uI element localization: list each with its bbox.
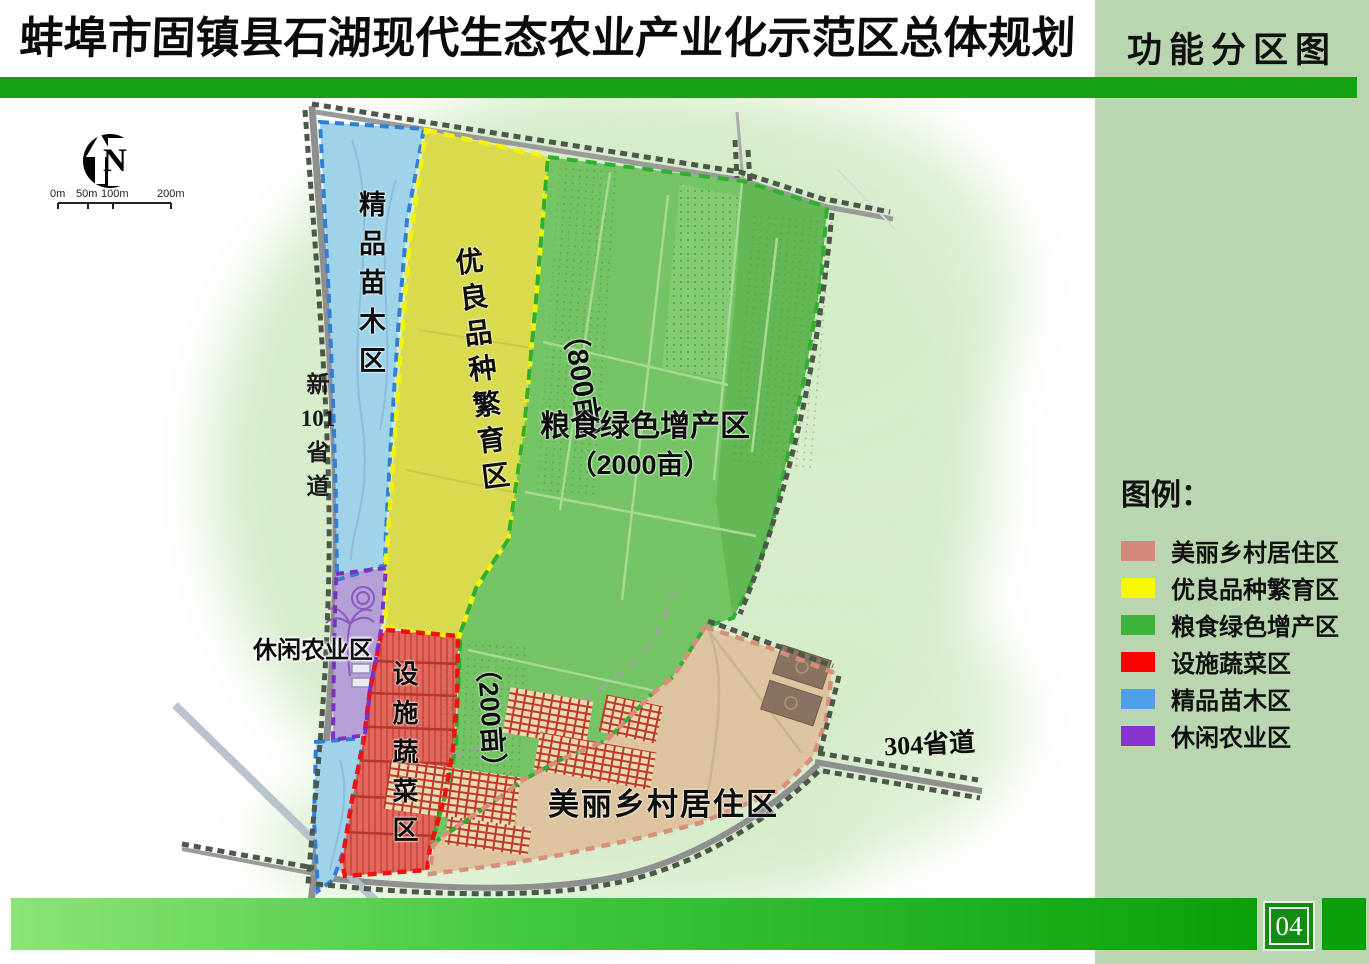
road-label-101: 新 101 省 道: [297, 368, 339, 504]
scale-label-0: 0m: [50, 188, 65, 200]
plan-sheet: 精品苗木区 优良品种繁育区 （800亩） 粮食绿色增产区 （2000亩） 设施蔬…: [0, 0, 1369, 964]
scale-label-50: 50m: [76, 188, 97, 200]
legend-swatch-nursery: [1121, 689, 1155, 709]
legend-item-village: 美丽乡村居住区: [1121, 532, 1351, 569]
legend-swatch-leisure: [1121, 726, 1155, 746]
zone-label-grain: 粮食绿色增产区 （2000亩）: [540, 408, 740, 484]
legend-label: 休闲农业区: [1171, 718, 1291, 753]
scale-label-200: 200m: [157, 188, 185, 200]
road-101-char: 省: [297, 436, 339, 470]
legend-item-vegetable: 设施蔬菜区: [1121, 643, 1351, 680]
sheet-subtitle: 功能分区图: [1095, 22, 1369, 73]
zone-label-grain-area: （2000亩）: [540, 446, 740, 484]
legend-label: 粮食绿色增产区: [1171, 607, 1339, 642]
legend: 图例： 美丽乡村居住区 优良品种繁育区 粮食绿色增产区 设施蔬菜区 精品苗木区: [1121, 470, 1351, 754]
road-label-304: 304省道: [883, 722, 976, 764]
legend-label: 精品苗木区: [1171, 681, 1291, 716]
road-101-char: 道: [297, 470, 339, 504]
title-bar: 蚌埠市固镇县石湖现代生态农业产业化示范区总体规划: [0, 0, 1095, 78]
legend-item-leisure: 休闲农业区: [1121, 717, 1351, 754]
legend-label: 美丽乡村居住区: [1171, 533, 1339, 568]
top-green-bar: [0, 77, 1357, 98]
bottom-bar-right-segment: [1322, 898, 1366, 950]
page-number: 04: [1269, 907, 1309, 945]
scale-label-100: 100m: [101, 188, 129, 200]
zone-label-leisure: 休闲农业区: [253, 630, 373, 665]
legend-item-seed: 优良品种繁育区: [1121, 569, 1351, 606]
zone-label-vegetable: 设施蔬菜区: [386, 660, 423, 855]
legend-swatch-grain: [1121, 615, 1155, 635]
legend-item-nursery: 精品苗木区: [1121, 680, 1351, 717]
legend-title: 图例：: [1121, 470, 1351, 514]
zone-label-nursery: 精品苗木区: [351, 190, 390, 385]
legend-swatch-seed: [1121, 578, 1155, 598]
legend-item-grain: 粮食绿色增产区: [1121, 606, 1351, 643]
page-title: 蚌埠市固镇县石湖现代生态农业产业化示范区总体规划: [0, 0, 1096, 78]
legend-swatch-village: [1121, 541, 1155, 561]
zone-label-grain-name: 粮食绿色增产区: [540, 408, 740, 446]
road-101-char: 新: [297, 368, 339, 402]
sidebar: 功能分区图 图例： 美丽乡村居住区 优良品种繁育区 粮食绿色增产区 设施蔬菜区 …: [1095, 0, 1369, 964]
road-101-char: 101: [297, 402, 339, 436]
legend-swatch-vegetable: [1121, 652, 1155, 672]
page-number-box: 04: [1263, 901, 1315, 951]
zone-label-village: 美丽乡村居住区: [548, 779, 779, 824]
scale-bar: [58, 203, 171, 209]
legend-label: 设施蔬菜区: [1171, 644, 1291, 679]
legend-label: 优良品种繁育区: [1171, 570, 1339, 605]
north-letter: N: [103, 143, 127, 180]
bottom-green-bar: [11, 898, 1257, 950]
